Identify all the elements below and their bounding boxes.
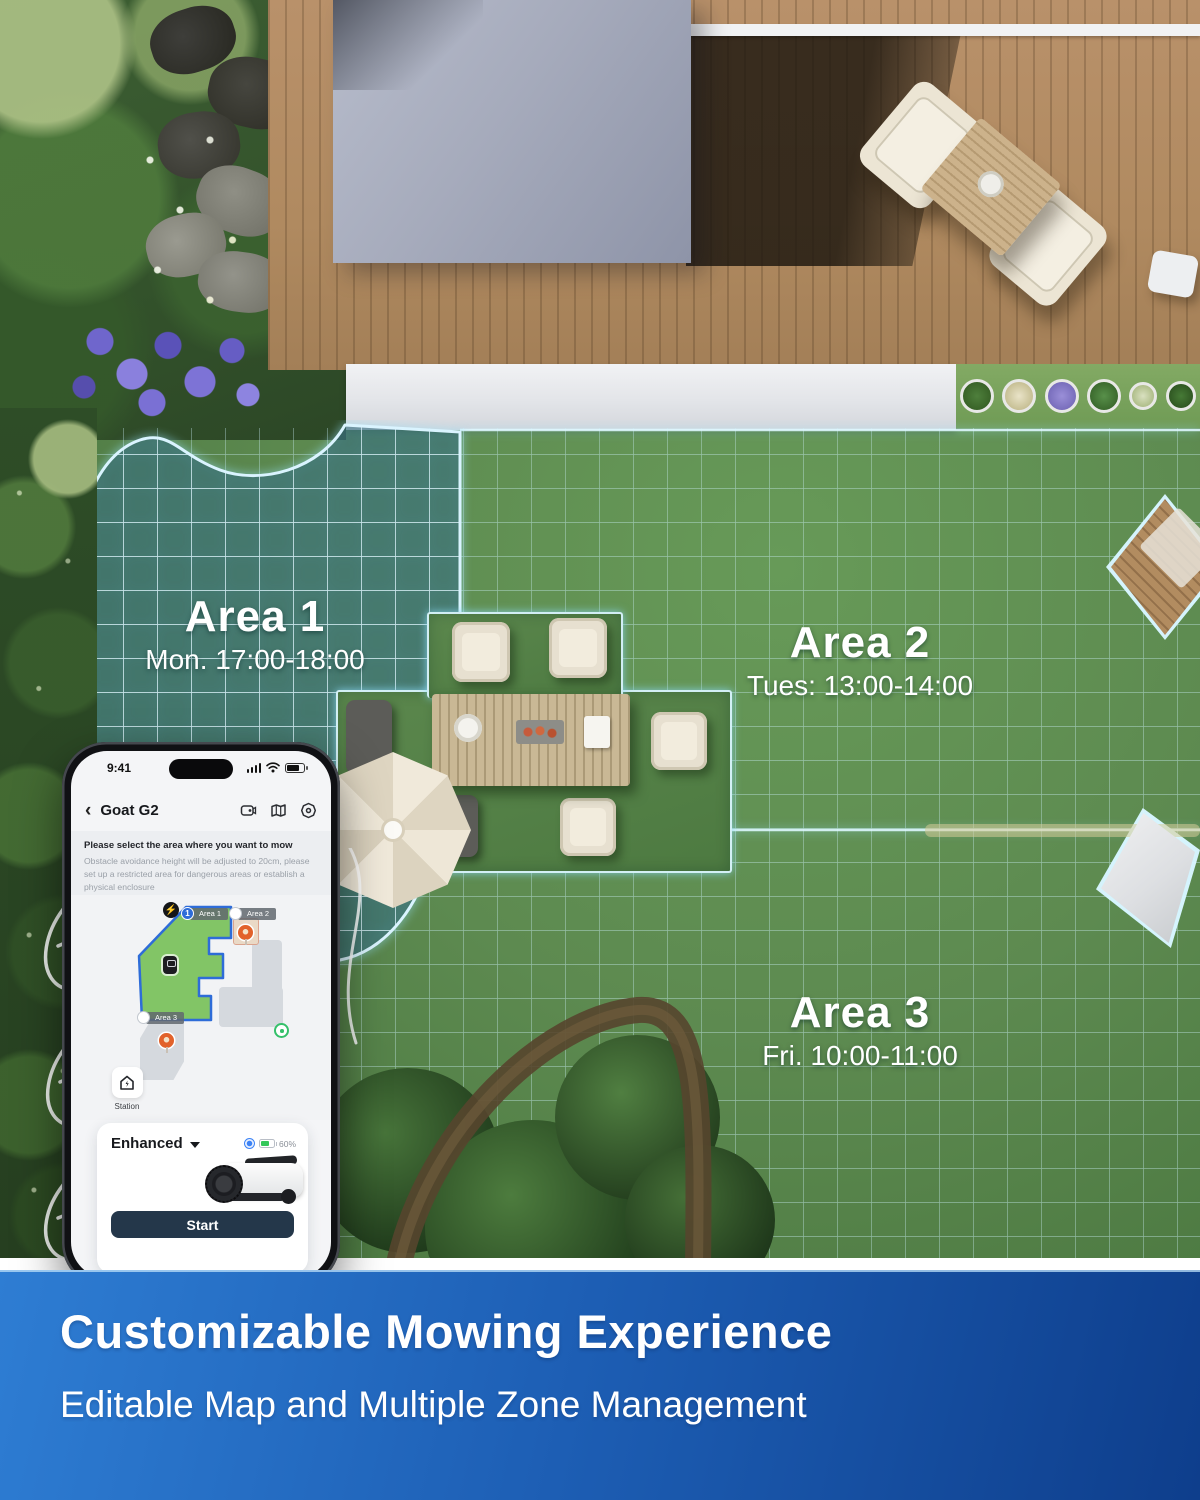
battery-icon [285, 763, 305, 773]
potted-plant [1087, 379, 1121, 413]
area1-schedule: Mon. 17:00-18:00 [90, 644, 420, 676]
map-icon[interactable] [270, 802, 287, 819]
potted-plant [1129, 382, 1157, 410]
potted-plant [1045, 379, 1079, 413]
area3-tag[interactable]: Area 3 [137, 1011, 184, 1024]
mow-control-card: Enhanced 60% Start [97, 1123, 308, 1273]
patio-chair [549, 618, 607, 678]
patio-chair [452, 622, 510, 682]
area2-schedule: Tues: 13:00-14:00 [690, 670, 1030, 702]
camera-icon[interactable] [240, 802, 257, 819]
mode-dropdown[interactable]: Enhanced [111, 1135, 183, 1152]
mower-product-image [205, 1153, 305, 1211]
app-screen: 9:41 ‹ Goat G2 [71, 751, 331, 1278]
potted-plant [1002, 379, 1036, 413]
table-napkin [584, 716, 610, 748]
station-button[interactable] [112, 1067, 143, 1098]
mower-front-wheel [205, 1165, 243, 1203]
signal-icon [247, 763, 262, 773]
table-plate [454, 714, 482, 742]
area2-tag-label[interactable]: Area 2 [238, 908, 276, 920]
robot-battery-icon [259, 1139, 275, 1148]
area1-tag-label[interactable]: Area 1 [190, 908, 228, 920]
zone-label-area3: Area 3 Fri. 10:00-11:00 [690, 988, 1030, 1072]
phone-mockup: 9:41 ‹ Goat G2 [62, 742, 340, 1287]
mowing-map[interactable]: ⚡ 1 Area 1 Area 2 Area 3 [71, 895, 331, 1120]
area2-select-circle[interactable] [229, 907, 242, 920]
flower-pin-icon [238, 925, 253, 940]
station-label: Station [98, 1102, 156, 1111]
area1-tag[interactable]: 1 Area 1 [181, 907, 228, 920]
patio-chair [651, 712, 707, 770]
gps-status-icon [244, 1138, 255, 1149]
patio-chair [560, 798, 616, 856]
wifi-icon [266, 762, 280, 773]
beacon-icon [274, 1023, 289, 1038]
chevron-down-icon[interactable] [190, 1142, 200, 1148]
banner-subtitle: Editable Map and Multiple Zone Managemen… [60, 1384, 807, 1426]
flower-pin-icon [159, 1033, 174, 1048]
robot-marker-icon [163, 956, 177, 974]
marketing-banner: Customizable Mowing Experience Editable … [0, 1270, 1200, 1500]
zone-label-area2: Area 2 Tues: 13:00-14:00 [690, 618, 1030, 702]
instruction-title: Please select the area where you want to… [84, 840, 318, 851]
settings-gear-icon[interactable] [300, 802, 317, 819]
area2-name: Area 2 [690, 618, 1030, 668]
mower-rear-wheel [281, 1189, 296, 1204]
planter-row [956, 364, 1200, 428]
hydrangea-flowers [64, 296, 264, 426]
clock: 9:41 [107, 761, 131, 775]
back-chevron-icon[interactable]: ‹ [85, 801, 91, 820]
table-food-tray [516, 720, 564, 744]
banner-title: Customizable Mowing Experience [60, 1304, 832, 1359]
area3-name: Area 3 [690, 988, 1030, 1038]
station-house-icon [118, 1074, 136, 1092]
instruction-body: Obstacle avoidance height will be adjust… [84, 855, 318, 894]
tree-shadow-on-roof [333, 0, 483, 90]
station-control[interactable]: Station [98, 1067, 156, 1111]
deck-ledge [688, 24, 1200, 36]
zone-label-area1: Area 1 Mon. 17:00-18:00 [90, 592, 420, 676]
deck-corner-chair [1147, 249, 1200, 298]
area3-tag-label[interactable]: Area 3 [146, 1012, 184, 1024]
area1-index-badge[interactable]: 1 [181, 907, 194, 920]
area3-select-circle[interactable] [137, 1011, 150, 1024]
instruction-panel: Please select the area where you want to… [71, 831, 331, 904]
area1-name: Area 1 [90, 592, 420, 642]
app-header: ‹ Goat G2 [71, 795, 331, 825]
start-button[interactable]: Start [111, 1211, 294, 1238]
potted-plant [960, 379, 994, 413]
white-flowers [120, 120, 270, 320]
patio-dining-table [432, 694, 630, 786]
area3-schedule: Fri. 10:00-11:00 [690, 1040, 1030, 1072]
potted-plant [1166, 381, 1196, 411]
dynamic-island [169, 759, 233, 779]
lightning-badge-icon: ⚡ [163, 902, 179, 918]
area2-tag[interactable]: Area 2 [229, 907, 276, 920]
battery-percent: 60% [279, 1139, 296, 1149]
status-bar: 9:41 [71, 751, 331, 783]
page-title: Goat G2 [100, 802, 158, 819]
house-footprint [252, 940, 282, 992]
